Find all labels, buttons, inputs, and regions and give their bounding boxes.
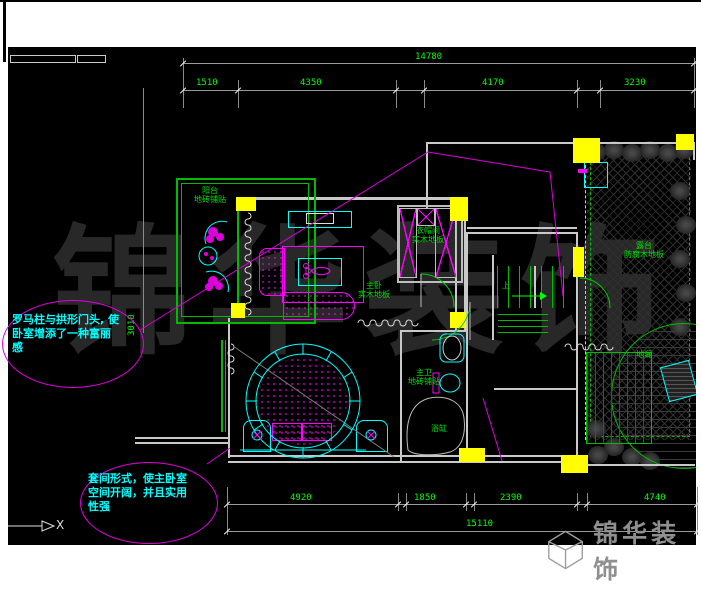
room-label-terrace: 露台 防腐木地板 [614, 241, 674, 259]
stair-step [519, 266, 520, 308]
dim-extension [143, 88, 144, 333]
wood-platform [586, 352, 652, 444]
tree-icon [676, 216, 696, 234]
column [450, 312, 466, 328]
wall-stair-left [492, 255, 494, 340]
dim-extension [183, 58, 184, 108]
window-line [221, 340, 223, 432]
annotation-text-suite: 套间形式，使主卧室 空间开阔，并且实用 性强 [88, 472, 212, 514]
dim-text: 1510 [196, 78, 218, 88]
frame-left-line [3, 0, 6, 62]
room-label-master-bath: 主卫 地砖铺贴 [402, 368, 446, 386]
pillow [302, 423, 332, 441]
wall-bath-left [400, 330, 402, 462]
dim-extension [600, 80, 601, 108]
wall-stair-bottom [494, 388, 578, 390]
window-sill [135, 437, 230, 439]
stair-step [541, 266, 542, 308]
dim-line [183, 90, 696, 91]
dim-text: 2390 [500, 493, 522, 503]
room-label-master-bedroom: 主卧 实木地板 [352, 281, 396, 299]
label-drain: 地漏 [631, 350, 657, 359]
window-line [237, 199, 239, 303]
planter-box [584, 162, 608, 188]
stair-rail [534, 266, 536, 308]
tv-icon [306, 213, 334, 224]
wall-hall-right [466, 232, 468, 462]
dim-extension [396, 80, 397, 108]
room-label-balcony: 阳台 地砖铺贴 [188, 186, 232, 204]
dim-extension [694, 58, 695, 108]
bed-headboard [259, 248, 285, 296]
wardrobe-x-box [417, 208, 435, 226]
column [231, 303, 245, 318]
logo-cube-icon [546, 527, 585, 573]
dim-text: 3230 [624, 78, 646, 88]
dim-line [183, 63, 696, 64]
dim-text-top-total: 14780 [415, 52, 442, 62]
dim-text: 4920 [290, 493, 312, 503]
window-line [225, 340, 226, 432]
wall-segment [10, 55, 76, 63]
stair-step [530, 266, 531, 308]
faucet-icon [578, 169, 587, 173]
wall-bottom [228, 455, 578, 457]
dim-extension [577, 80, 578, 108]
dim-text: 1850 [414, 493, 436, 503]
brand-logo: 锦华装饰 [546, 514, 701, 586]
pillow [272, 423, 302, 441]
column [236, 197, 256, 211]
annotation-text-roman-column: 罗马柱与拱形门头, 使 卧室增添了一种富丽 感 [12, 313, 140, 355]
brand-logo-text: 锦华装饰 [593, 514, 701, 586]
column [561, 455, 588, 473]
column [573, 138, 600, 163]
cad-screenshot: 锦华装饰 [0, 0, 701, 601]
tree-icon [676, 284, 696, 302]
wall-bottom [228, 461, 578, 463]
dim-text: 4350 [300, 78, 322, 88]
label-stairs-up: 上 [500, 281, 512, 290]
stair-step [498, 314, 548, 315]
frame-top-line [0, 0, 701, 2]
column [573, 247, 584, 277]
room-label-closet: 衣帽间 实木地板 [406, 226, 450, 244]
stair-step [563, 266, 564, 308]
bed-rug [298, 258, 342, 286]
label-bathtub: 浴缸 [424, 424, 454, 433]
nightstand [356, 420, 388, 452]
dim-extension [227, 487, 228, 535]
stair-step [497, 266, 498, 308]
column [459, 448, 485, 462]
chaise [283, 292, 355, 320]
column [450, 197, 468, 221]
stair-step [498, 326, 548, 327]
dim-text: 4170 [482, 78, 504, 88]
dim-text: 4740 [644, 493, 666, 503]
axis-x-label: X [56, 518, 64, 532]
wall-segment [77, 55, 106, 63]
tree-icon [622, 144, 642, 162]
dim-text-bottom-total: 15110 [466, 519, 493, 529]
window-sill [135, 442, 230, 444]
tree-icon [588, 446, 608, 464]
nightstand [243, 420, 271, 452]
wall-corridor-top [467, 232, 577, 234]
stair-step [498, 320, 548, 321]
dim-extension [238, 80, 239, 108]
wall-bath-top [400, 330, 466, 332]
dim-line [227, 504, 698, 505]
wall-terrace-bottom [583, 464, 695, 466]
wall-top [428, 142, 694, 144]
dim-extension [424, 80, 425, 108]
stair-step [498, 332, 548, 333]
column [676, 134, 694, 150]
stair-step [552, 266, 553, 308]
wall-corridor-top [467, 227, 577, 229]
tree-icon [670, 182, 690, 200]
